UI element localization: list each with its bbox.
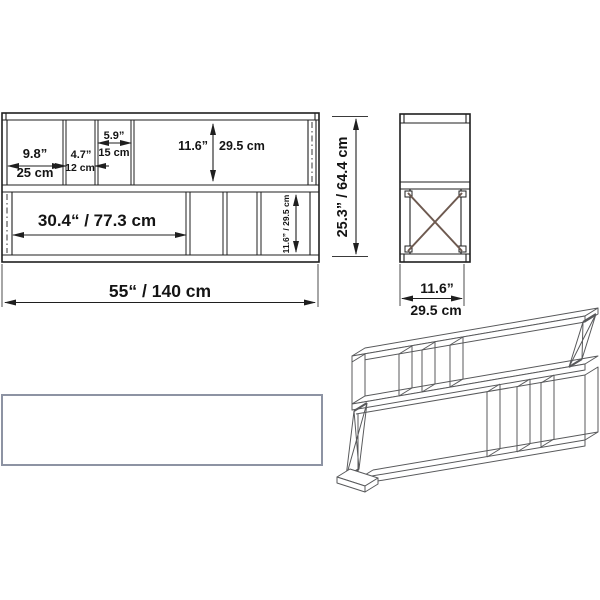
top-view	[2, 395, 322, 465]
technical-drawing-canvas: 9.8” 25 cm 4.7” 12 cm 5.9” 15 cm 11.6” 2…	[0, 0, 600, 600]
p3-lower-divider-3	[541, 375, 554, 447]
side-view: 25.3” / 64.4 cm 11.6” 29.5 cm	[332, 114, 470, 318]
dim-total-height: 25.3” / 64.4 cm	[335, 137, 351, 238]
drawing-svg: 9.8” 25 cm 4.7” 12 cm 5.9” 15 cm 11.6” 2…	[0, 0, 600, 600]
dim-upper-height-in: 11.6”	[178, 139, 208, 153]
dim-total-width: 55“ / 140 cm	[109, 281, 211, 301]
perspective-view	[337, 308, 598, 492]
p3-middle-shelf-front	[352, 364, 585, 410]
p3-bottom-slab-front	[360, 440, 585, 484]
dim-depth-cm: 29.5 cm	[410, 302, 461, 318]
p3-lower-divider-1	[487, 384, 500, 457]
p3-upper-left-panel	[352, 354, 365, 404]
p3-lower-divider-2	[517, 379, 530, 452]
top-view-outline	[2, 395, 322, 465]
dim-lower-span: 30.4“ / 77.3 cm	[38, 211, 156, 230]
front-view: 9.8” 25 cm 4.7” 12 cm 5.9” 15 cm 11.6” 2…	[2, 113, 319, 307]
p3-lower-back-floor-edge	[373, 432, 598, 470]
dim-c1-cm: 25 cm	[17, 165, 54, 180]
dim-upper-height-cm: 29.5 cm	[219, 139, 265, 153]
dim-c2-cm: 12 cm	[65, 162, 95, 174]
p3-middle-shelf-top	[352, 356, 598, 404]
front-upper-divider-1	[63, 120, 66, 185]
dim-c3-in: 5.9”	[104, 130, 125, 142]
dim-depth-in: 11.6”	[420, 280, 453, 296]
dim-lower-height: 11.6” / 29.5 cm	[281, 194, 291, 253]
front-outline	[2, 113, 319, 262]
dim-c2-in: 4.7”	[71, 149, 92, 161]
front-lower-divider-1	[186, 192, 190, 255]
dim-c1-in: 9.8”	[23, 146, 48, 161]
p3-top-slab-front	[352, 316, 585, 362]
p3-lower-end-panel	[585, 367, 598, 440]
front-lower-divider-3	[257, 192, 261, 255]
front-upper-divider-3	[131, 120, 134, 185]
p3-top-slab-top	[352, 308, 598, 356]
front-lower-divider-2	[223, 192, 227, 255]
dim-c3-cm: 15 cm	[98, 147, 129, 159]
